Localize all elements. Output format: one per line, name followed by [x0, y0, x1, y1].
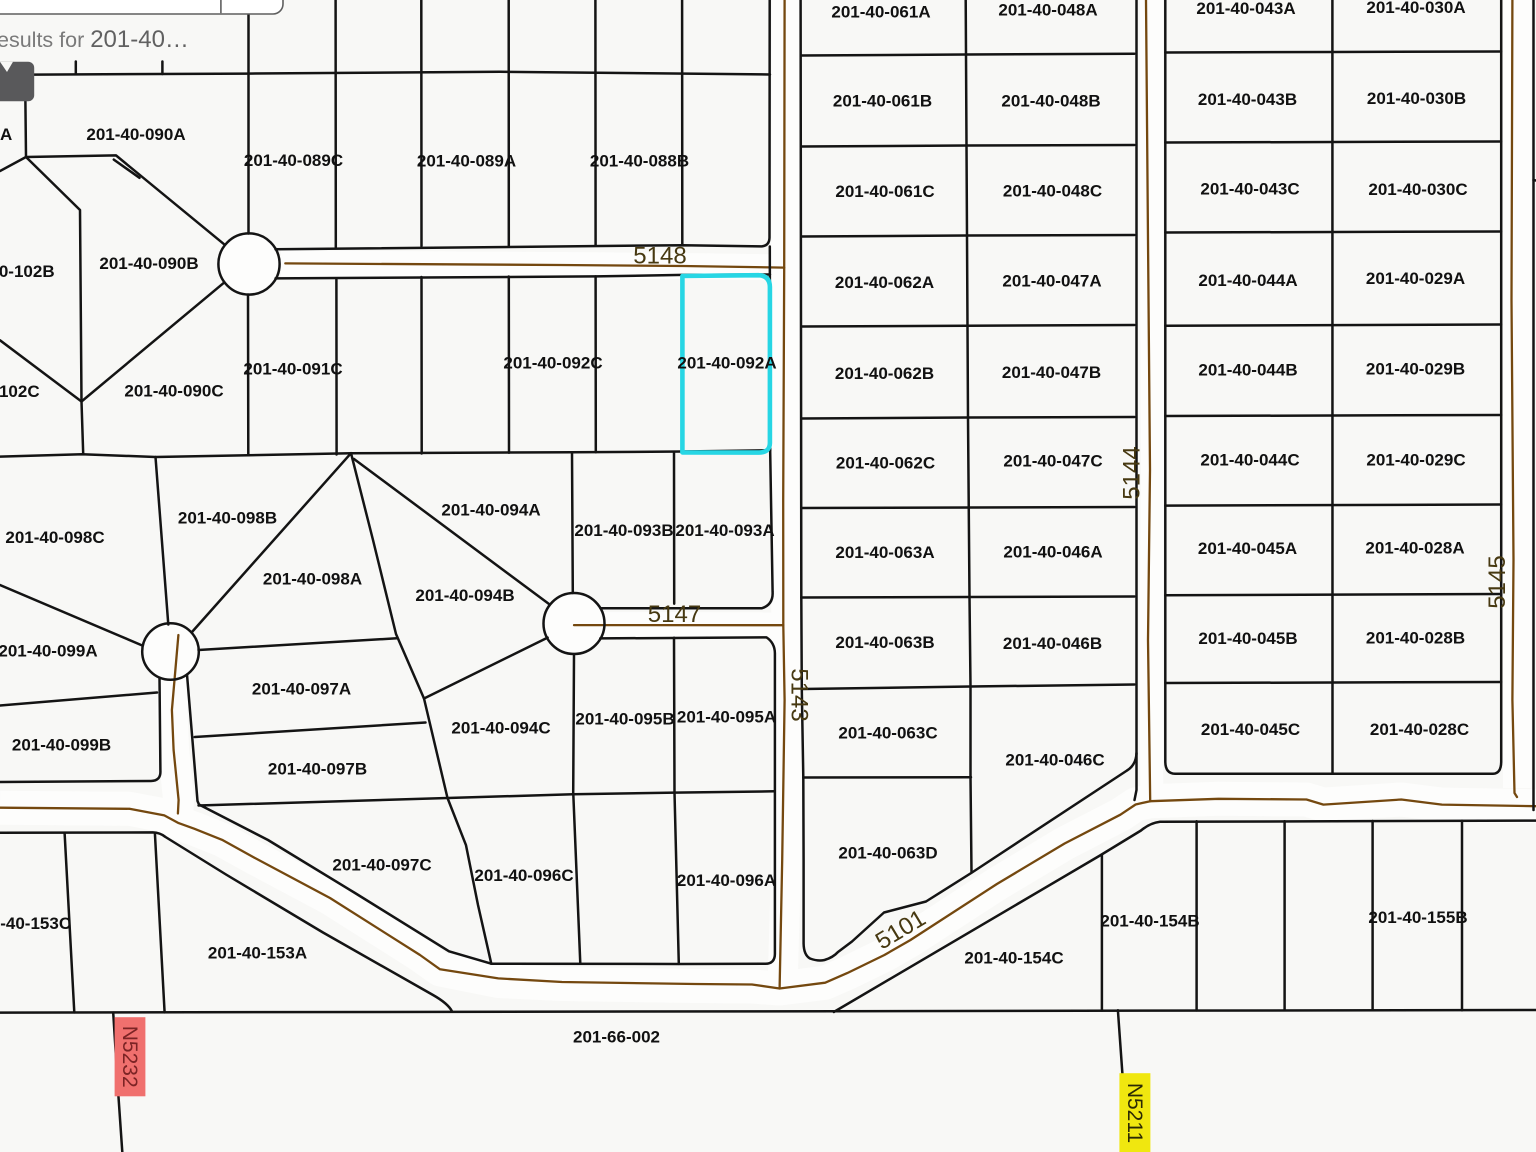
svg-text:201-40-092A: 201-40-092A [677, 354, 776, 373]
svg-text:201-40-030C: 201-40-030C [1368, 180, 1467, 199]
svg-text:201-40-099A: 201-40-099A [0, 642, 98, 661]
svg-text:201-40-089C: 201-40-089C [244, 151, 343, 170]
svg-text:201-40-097A: 201-40-097A [252, 680, 351, 699]
svg-text:201-40-045C: 201-40-045C [1201, 720, 1300, 739]
svg-text:201-40-046C: 201-40-046C [1005, 751, 1104, 770]
svg-text:201-40-048C: 201-40-048C [1003, 182, 1102, 201]
svg-text:201-40-153C: 201-40-153C [0, 914, 71, 933]
svg-text:201-40-044A: 201-40-044A [1198, 271, 1297, 290]
svg-text:201-40-088B: 201-40-088B [590, 152, 689, 171]
svg-text:201-40-045A: 201-40-045A [1198, 539, 1297, 558]
svg-text:5144: 5144 [1119, 446, 1146, 499]
svg-text:201-40-043A: 201-40-043A [1196, 0, 1295, 18]
svg-text:201-40-098A: 201-40-098A [263, 570, 362, 589]
svg-text:201-66-002: 201-66-002 [573, 1028, 660, 1047]
svg-text:201-40-030B: 201-40-030B [1367, 89, 1466, 108]
svg-text:201-40-102C: 201-40-102C [0, 382, 40, 401]
svg-text:201-40-090C: 201-40-090C [124, 382, 223, 401]
svg-text:201-40-047C: 201-40-047C [1003, 452, 1102, 471]
svg-text:201-40-154C: 201-40-154C [964, 949, 1063, 968]
svg-text:201-40-096A: 201-40-096A [677, 871, 776, 890]
svg-text:201-40-043B: 201-40-043B [1198, 90, 1297, 109]
svg-text:201-40-028B: 201-40-028B [1366, 629, 1465, 648]
svg-text:201-40-096C: 201-40-096C [474, 866, 573, 885]
svg-text:5145: 5145 [1484, 555, 1511, 608]
svg-text:201-40-098C: 201-40-098C [5, 528, 104, 547]
svg-text:201-40-063C: 201-40-063C [838, 724, 937, 743]
svg-text:201-40-154B: 201-40-154B [1100, 912, 1199, 931]
svg-text:201-40-097B: 201-40-097B [268, 760, 367, 779]
svg-text:201-40-062B: 201-40-062B [835, 364, 934, 383]
svg-text:201-40-062A: 201-40-062A [835, 273, 934, 292]
svg-text:201-40-094B: 201-40-094B [415, 586, 514, 605]
svg-text:201-40-063B: 201-40-063B [835, 633, 934, 652]
svg-text:201-40-061C: 201-40-061C [835, 182, 934, 201]
svg-text:201-40-044C: 201-40-044C [1200, 451, 1299, 470]
svg-text:201-40-102B: 201-40-102B [0, 262, 55, 281]
svg-text:5147: 5147 [648, 601, 701, 628]
svg-text:201-40-048A: 201-40-048A [998, 1, 1097, 20]
svg-text:5143: 5143 [785, 668, 812, 721]
svg-text:201-40-048B: 201-40-048B [1001, 92, 1100, 111]
svg-text:201-40-043C: 201-40-043C [1200, 180, 1299, 199]
svg-text:201-40-153A: 201-40-153A [208, 944, 307, 963]
svg-text:201-40-093B: 201-40-093B [574, 521, 673, 540]
svg-text:201-40-030A: 201-40-030A [1366, 0, 1465, 17]
svg-text:201-40-095B: 201-40-095B [575, 710, 674, 729]
svg-text:A: A [0, 125, 12, 144]
svg-text:esults for 201-40…: esults for 201-40… [0, 26, 189, 53]
svg-text:201-40-046A: 201-40-046A [1003, 543, 1102, 562]
svg-text:201-40-061A: 201-40-061A [831, 3, 930, 22]
svg-text:201-40-045B: 201-40-045B [1198, 629, 1297, 648]
svg-text:N5211: N5211 [1123, 1083, 1146, 1143]
svg-text:201-40-047A: 201-40-047A [1002, 272, 1101, 291]
svg-text:201-40-089A: 201-40-089A [417, 152, 516, 171]
svg-text:201-40-044B: 201-40-044B [1198, 361, 1297, 380]
svg-text:201-40-062C: 201-40-062C [836, 454, 935, 473]
svg-text:201-40-155B: 201-40-155B [1368, 908, 1467, 927]
svg-text:201-40-046B: 201-40-046B [1003, 634, 1102, 653]
svg-text:201-40-095A: 201-40-095A [677, 708, 776, 727]
svg-text:201-40-063A: 201-40-063A [835, 543, 934, 562]
svg-text:201-40-098B: 201-40-098B [178, 509, 277, 528]
svg-text:201-40-028A: 201-40-028A [1365, 539, 1464, 558]
svg-text:201-40-090B: 201-40-090B [99, 254, 198, 273]
svg-text:201-40-029A: 201-40-029A [1366, 269, 1465, 288]
svg-text:N5232: N5232 [118, 1026, 141, 1088]
svg-text:201-40-097C: 201-40-097C [332, 856, 431, 875]
svg-text:201-40-099B: 201-40-099B [12, 736, 111, 755]
svg-text:201-40-028C: 201-40-028C [1370, 720, 1469, 739]
svg-text:201-40-091C: 201-40-091C [243, 360, 342, 379]
svg-text:201-40-029C: 201-40-029C [1366, 451, 1465, 470]
svg-text:5148: 5148 [633, 243, 686, 270]
svg-text:201-40-090A: 201-40-090A [86, 125, 185, 144]
svg-text:201-40-094A: 201-40-094A [441, 501, 540, 520]
svg-text:201-40-094C: 201-40-094C [451, 719, 550, 738]
svg-text:201-40-047B: 201-40-047B [1002, 363, 1101, 382]
svg-text:201-40-092C: 201-40-092C [503, 354, 602, 373]
svg-text:201-40-029B: 201-40-029B [1366, 360, 1465, 379]
svg-text:201-40-063D: 201-40-063D [838, 844, 937, 863]
svg-text:201-40-061B: 201-40-061B [833, 92, 932, 111]
svg-text:201-40-093A: 201-40-093A [675, 521, 774, 540]
